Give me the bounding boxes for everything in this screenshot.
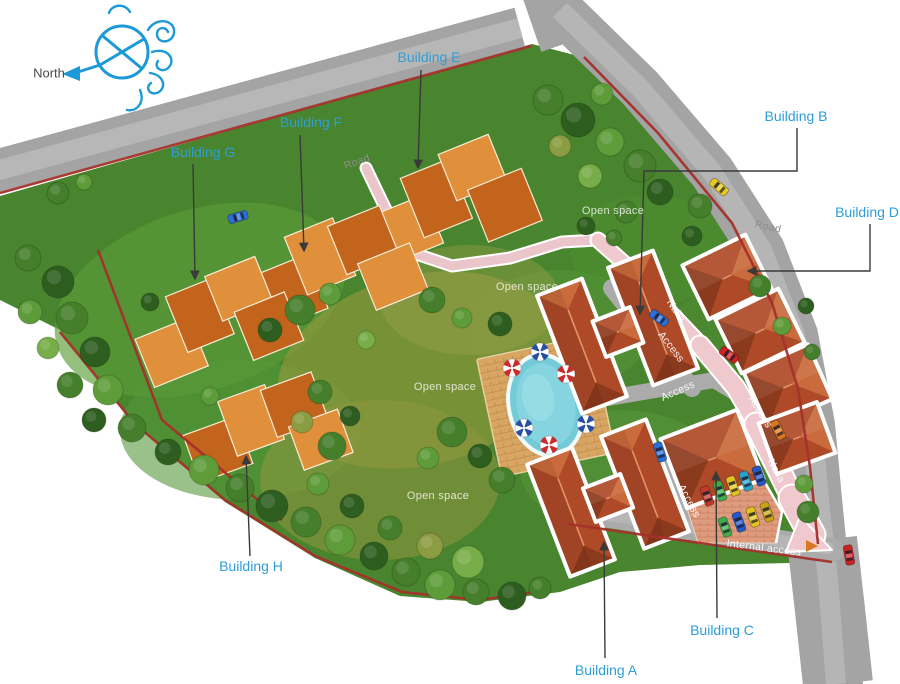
compass-flourish [109, 6, 174, 111]
compass-rose [62, 6, 174, 111]
site-map-canvas [0, 0, 900, 684]
building-a-leader-line [604, 542, 605, 658]
north-arrow-head [62, 66, 80, 81]
site-plan-illustration: North Building A Building B Building C B… [0, 0, 900, 684]
north-arrow [78, 65, 100, 72]
building-c-leader-line [716, 472, 717, 618]
